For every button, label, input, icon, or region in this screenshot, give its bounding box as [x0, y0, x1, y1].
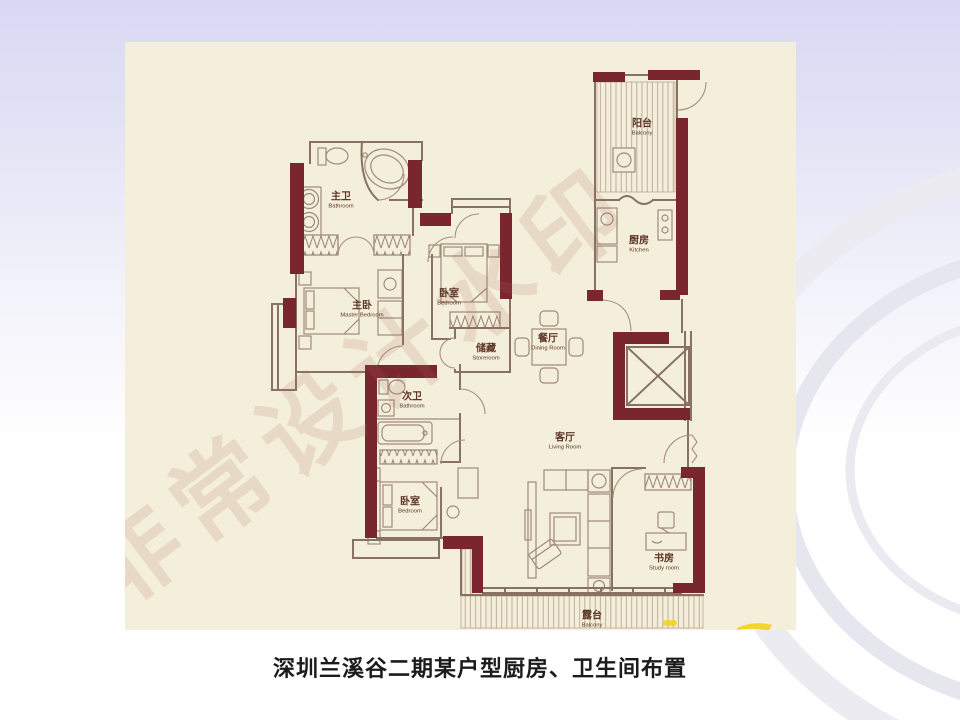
living-room-furniture: [525, 470, 610, 594]
bedroom-lower-furniture: [368, 468, 478, 544]
kitchen-counters: [597, 208, 672, 262]
dining-table-set: [515, 311, 583, 383]
floor-plan-drawing: [125, 42, 796, 630]
slide-caption: 深圳兰溪谷二期某户型厨房、卫生间布置: [0, 651, 960, 683]
master-bedroom-furniture: [299, 270, 402, 349]
floor-plan-image: 非常设计水印 主卫 Bathroom 主卧 Master Bedroom 卧室 …: [125, 42, 796, 630]
second-bath-fixtures: [377, 380, 460, 444]
bedroom-top-furniture: [429, 244, 499, 302]
balcony-washer: [613, 148, 635, 172]
slide: { "slide": { "caption": "深圳兰溪谷二期某户型厨房、卫生…: [0, 0, 960, 720]
study-furniture: [646, 512, 686, 550]
furniture-group: [299, 141, 691, 594]
wardrobe-strips: [302, 235, 691, 490]
